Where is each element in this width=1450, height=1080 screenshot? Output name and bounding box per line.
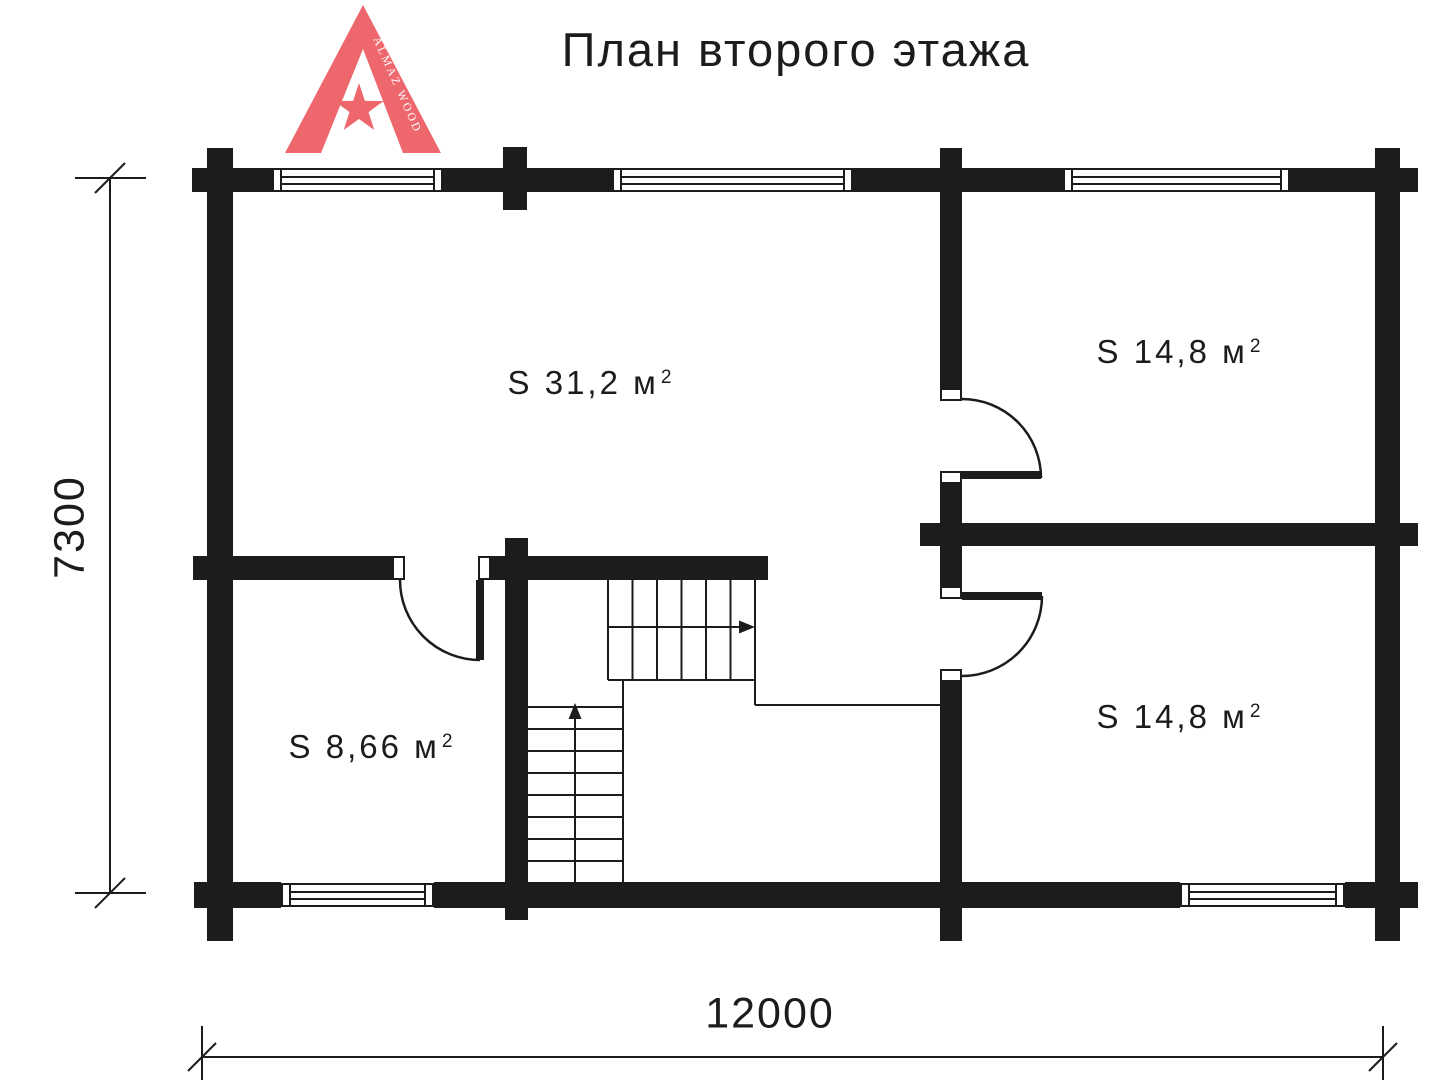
door-upper-right-room — [940, 389, 1041, 483]
door-lower-right-room — [940, 587, 1042, 681]
stair-direction-arrow-right — [739, 621, 755, 634]
walls — [192, 147, 1418, 941]
dimension-label-left: 7300 — [46, 475, 95, 579]
floor-plan-page: ALMAZ WOOD План второго этажа S 31,2 м2 … — [0, 0, 1450, 1080]
window-top-left — [272, 168, 443, 192]
stairwell-edge — [623, 680, 940, 882]
stairs-lower-flight — [528, 703, 623, 882]
page-title: План второго этажа — [562, 22, 1031, 77]
window-top-right — [1063, 168, 1290, 192]
dimension-label-bottom: 12000 — [705, 990, 835, 1039]
window-bottom-right — [1180, 882, 1345, 908]
almaz-wood-logo: ALMAZ WOOD — [285, 5, 441, 153]
stair-direction-arrow-up — [569, 703, 582, 719]
stairs-upper-flight — [608, 580, 755, 680]
room-label-top-right: S 14,8 м2 — [1097, 333, 1264, 371]
door-bottom-left-room — [393, 556, 490, 660]
window-top-middle — [612, 168, 853, 192]
room-label-hall: S 31,2 м2 — [508, 364, 675, 402]
window-bottom-left — [281, 882, 434, 908]
room-label-bottom-left: S 8,66 м2 — [289, 728, 456, 766]
room-label-bottom-right: S 14,8 м2 — [1097, 698, 1264, 736]
floor-plan-drawing: ALMAZ WOOD — [0, 0, 1450, 1080]
